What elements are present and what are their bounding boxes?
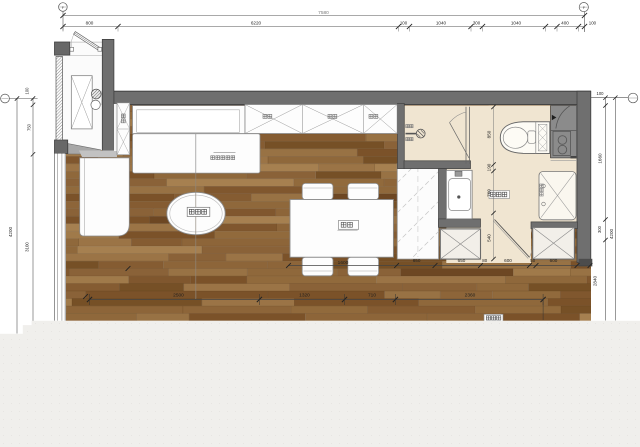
svg-text:760: 760 bbox=[487, 189, 492, 197]
svg-text:300: 300 bbox=[597, 225, 602, 233]
svg-text:1040: 1040 bbox=[436, 21, 447, 26]
svg-text:7580: 7580 bbox=[318, 10, 329, 16]
svg-text:4200: 4200 bbox=[609, 228, 614, 239]
svg-text:400: 400 bbox=[561, 21, 569, 26]
svg-text:650: 650 bbox=[413, 258, 421, 263]
svg-text:100: 100 bbox=[597, 91, 605, 96]
svg-text:190: 190 bbox=[487, 163, 492, 171]
svg-text:100: 100 bbox=[25, 87, 30, 95]
svg-text:600: 600 bbox=[504, 258, 512, 263]
svg-text:50: 50 bbox=[530, 258, 535, 263]
svg-text:3100: 3100 bbox=[25, 242, 30, 252]
svg-text:2360: 2360 bbox=[465, 293, 476, 299]
svg-text:100: 100 bbox=[400, 21, 408, 26]
svg-text:1600: 1600 bbox=[338, 260, 349, 266]
svg-text:1320: 1320 bbox=[299, 293, 310, 299]
svg-text:800: 800 bbox=[86, 21, 94, 26]
svg-text:300: 300 bbox=[473, 21, 481, 26]
svg-text:100: 100 bbox=[589, 21, 597, 26]
svg-text:2500: 2500 bbox=[173, 293, 184, 299]
svg-text:80: 80 bbox=[482, 258, 487, 263]
svg-text:600: 600 bbox=[550, 258, 558, 263]
svg-text:4200: 4200 bbox=[8, 226, 13, 237]
svg-text:750: 750 bbox=[27, 123, 32, 131]
svg-text:650: 650 bbox=[458, 258, 466, 263]
svg-text:850: 850 bbox=[487, 130, 492, 138]
svg-text:540: 540 bbox=[487, 234, 492, 242]
svg-text:2840: 2840 bbox=[593, 275, 598, 286]
svg-text:710: 710 bbox=[368, 293, 376, 299]
svg-text:6220: 6220 bbox=[251, 21, 262, 26]
svg-text:1040: 1040 bbox=[511, 21, 522, 26]
svg-text:1660: 1660 bbox=[598, 153, 603, 164]
